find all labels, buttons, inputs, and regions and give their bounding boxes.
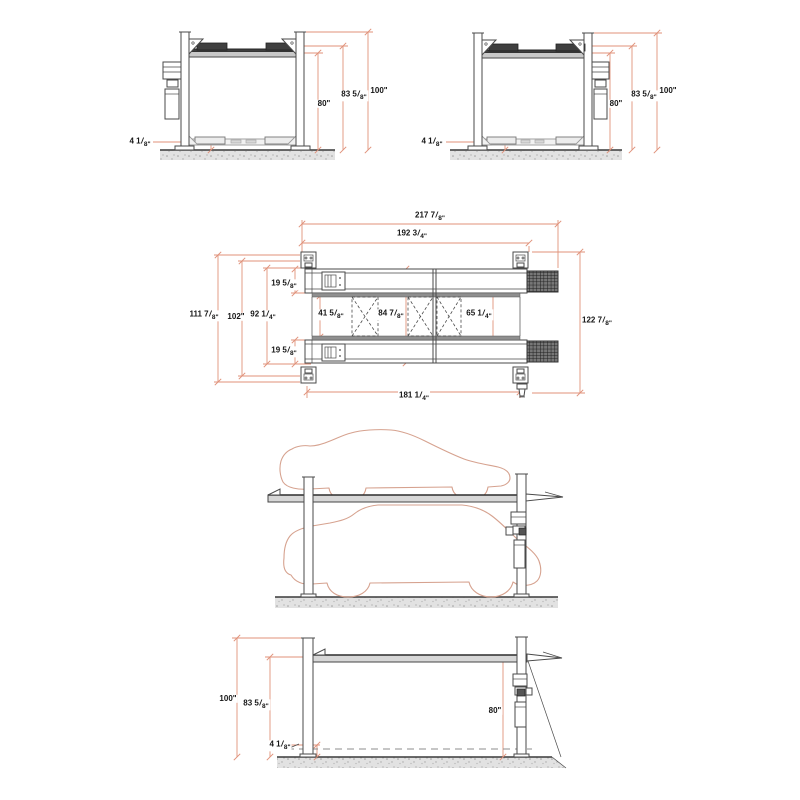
runway-box [322, 272, 345, 290]
dim-label: 4 1/8" [420, 137, 443, 148]
dim-label: 102" [226, 313, 245, 321]
dim-label: 65 1/4" [465, 309, 493, 320]
runway-box [322, 344, 345, 361]
dim-label: 83 5/8" [242, 699, 270, 710]
dim-label: 80" [317, 100, 332, 108]
post-plan [301, 367, 316, 383]
lift-post [296, 32, 304, 150]
concrete-floor [450, 150, 622, 160]
dim-label: 4 1/8" [128, 137, 151, 148]
dim-label: 217 7/8" [414, 211, 446, 222]
dim-label: 83 5/8" [630, 90, 658, 101]
dim-label: 80" [488, 707, 503, 715]
sedan-outline [280, 430, 510, 501]
post-plan [513, 252, 528, 268]
hydraulic-fitting [517, 384, 527, 397]
dim-label: 100" [218, 695, 237, 703]
lift-post [303, 638, 313, 757]
dim-label: 80" [609, 100, 624, 108]
runway-side [313, 655, 527, 662]
concrete-floor [160, 150, 335, 160]
lift-post [181, 32, 189, 150]
lift-post [517, 637, 526, 757]
post-plan [301, 252, 316, 268]
approach-ramp [527, 341, 558, 362]
dim-label: 83 5/8" [340, 90, 368, 101]
dim-label: 111 7/8" [188, 310, 219, 321]
dim-label: 4 1/8" [268, 740, 291, 751]
dim-label: 100" [369, 87, 388, 95]
dim-label: 100" [658, 87, 677, 95]
dim-label: 84 7/8" [377, 309, 405, 320]
approach-ramp-side [527, 654, 562, 661]
dim-label: 122 7/8" [581, 316, 613, 327]
power-unit [506, 512, 526, 568]
runway-section [197, 43, 227, 50]
lift-post [304, 477, 313, 597]
dim-label: 192 3/4" [396, 229, 428, 240]
lift-post [474, 33, 482, 150]
approach-ramp-side [526, 494, 563, 501]
dim-label: 19 5/8" [270, 279, 298, 290]
suv-outline [284, 505, 541, 597]
post-plan [513, 367, 528, 383]
view-side-elevation-cars [268, 430, 563, 608]
dim-label: 181 1/4" [398, 391, 430, 402]
concrete-floor [277, 757, 566, 768]
lift-post [517, 474, 526, 597]
power-unit [592, 62, 609, 119]
dim-label: 19 5/8" [270, 346, 298, 357]
cross-rail-x-bracing [352, 297, 461, 336]
dim-label: 41 5/8" [317, 309, 345, 320]
concrete-floor [275, 597, 558, 608]
approach-ramp [527, 271, 558, 292]
dim-label: 92 1/4" [249, 310, 277, 321]
runway-section [489, 44, 518, 51]
power-unit [163, 62, 181, 119]
lift-spec-drawing: 100"83 5/8"80"4 1/8"100"83 5/8"80"4 1/8"… [0, 0, 800, 800]
